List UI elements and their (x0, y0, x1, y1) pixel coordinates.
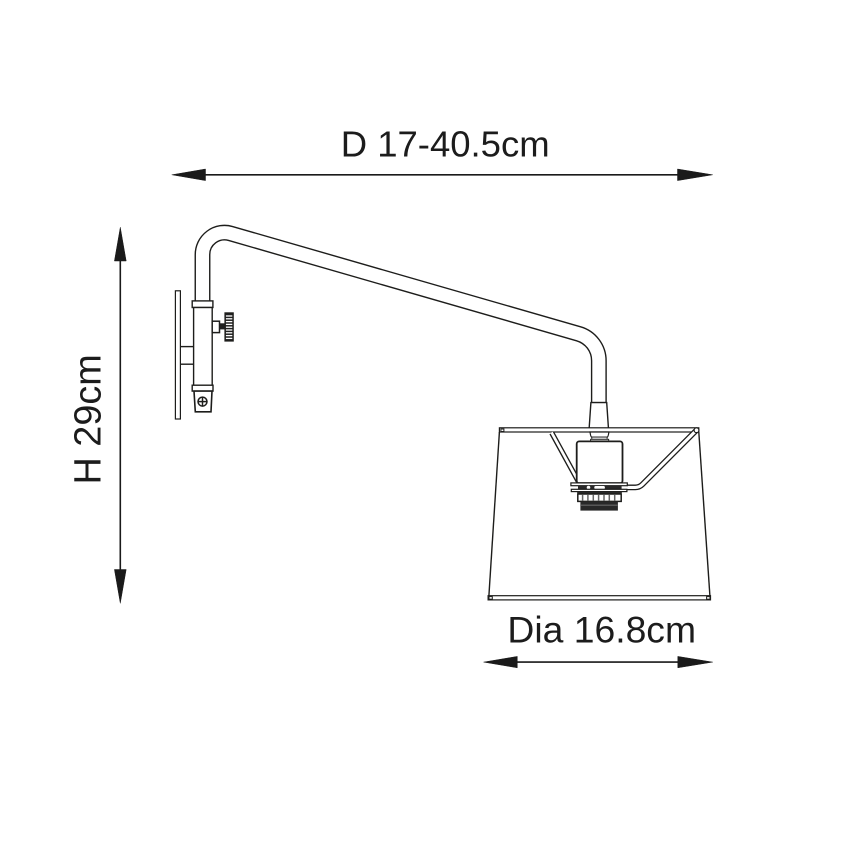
svg-text:Dia 16.8cm: Dia 16.8cm (507, 608, 696, 650)
svg-text:D 17-40.5cm: D 17-40.5cm (341, 124, 550, 165)
svg-text:H 29cm: H 29cm (67, 354, 109, 484)
